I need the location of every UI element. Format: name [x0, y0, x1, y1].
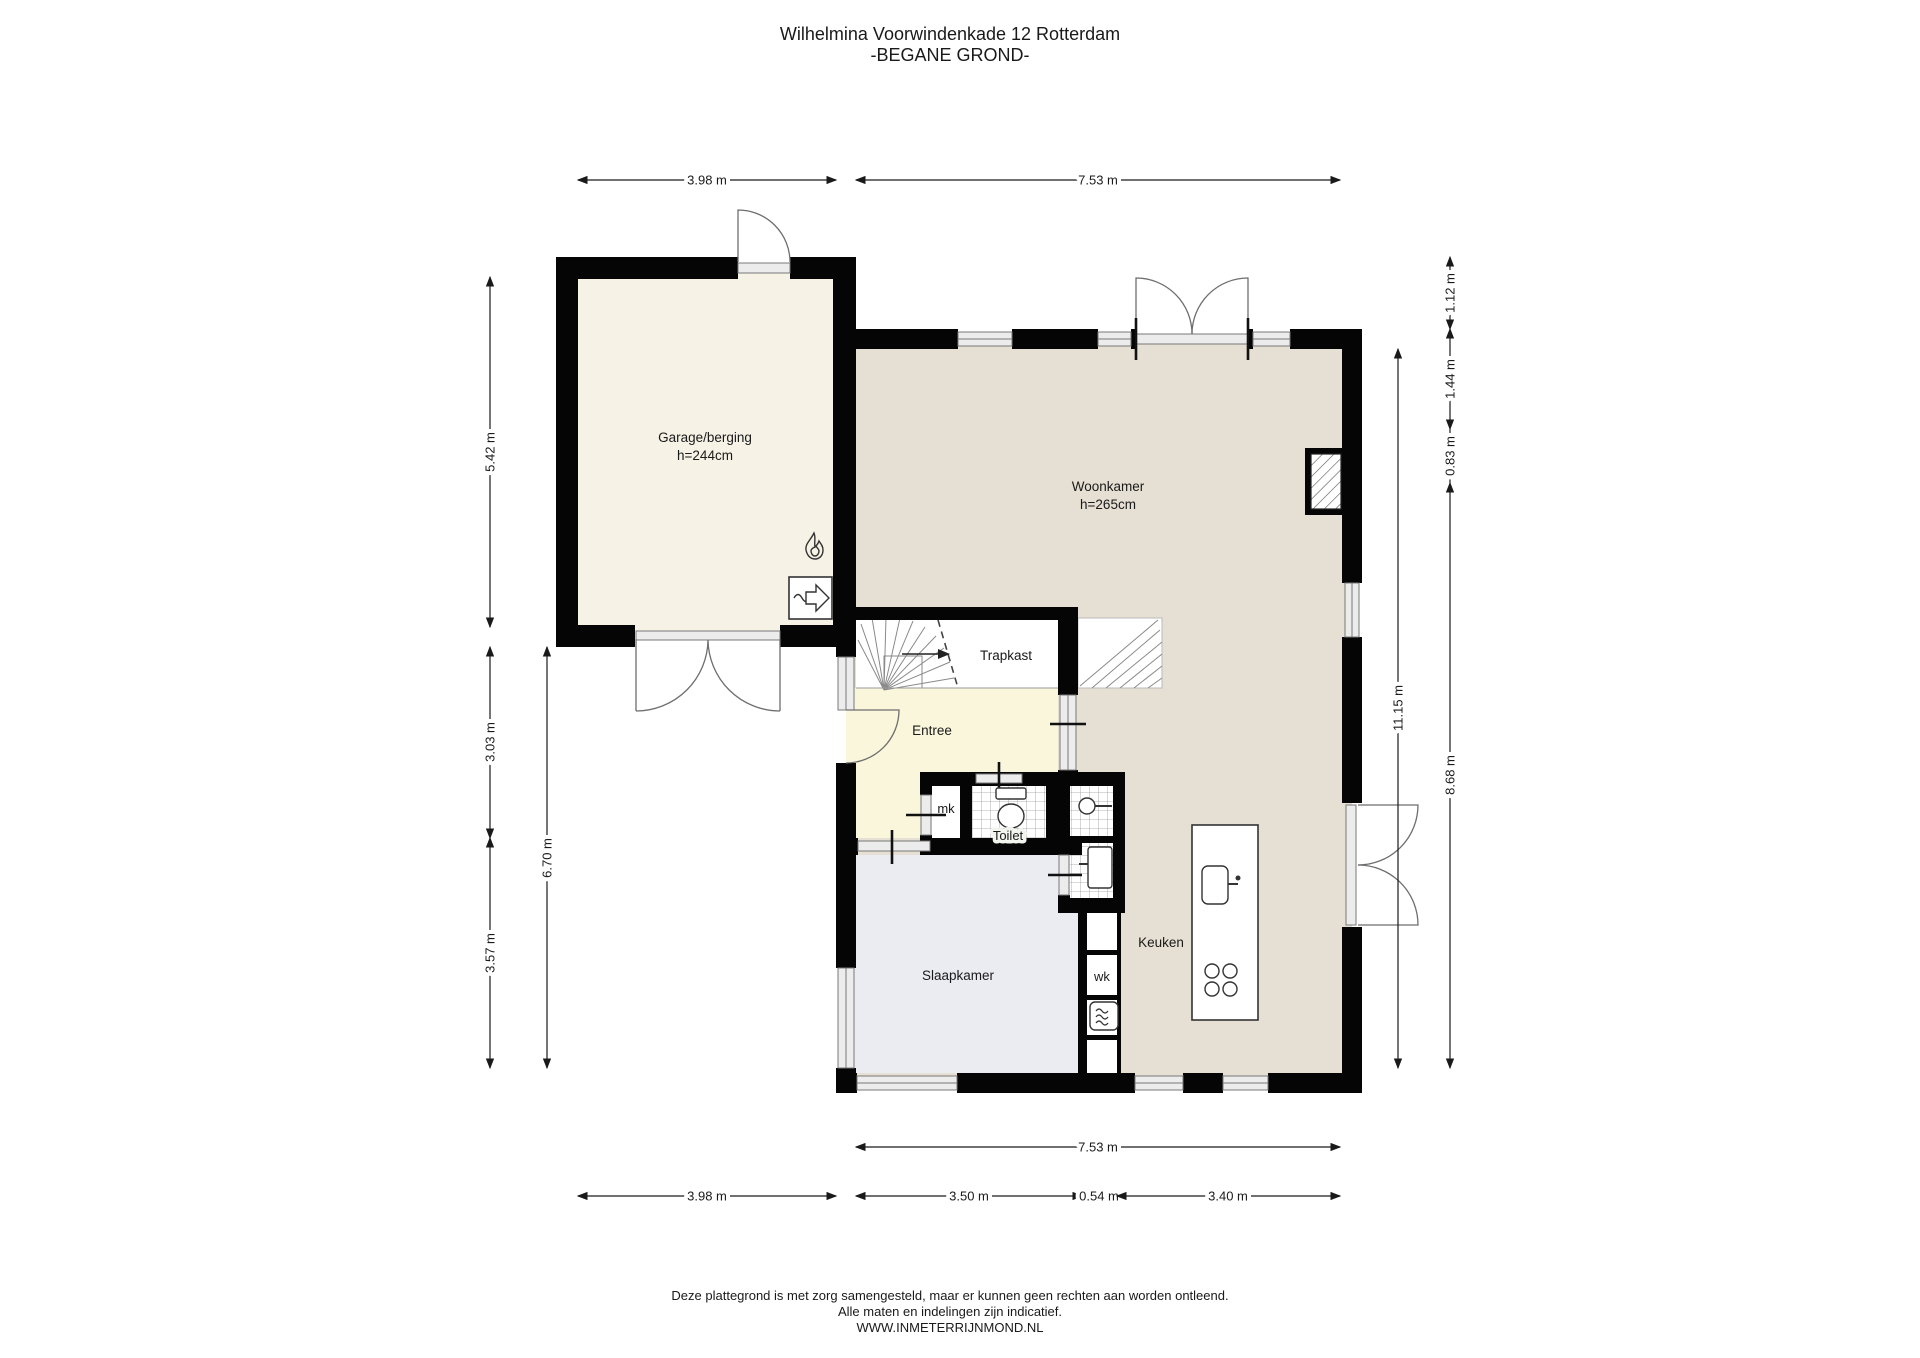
woonkamer-top-window-2 [1098, 332, 1131, 346]
dim-top-garage: 3.98 m [687, 173, 727, 188]
ventilation-unit-icon [789, 577, 832, 619]
oven-icon [1090, 1002, 1118, 1030]
garage-garden-double-door [636, 631, 780, 711]
stair-upper-flight [1078, 618, 1162, 688]
woonkamer-right-window [1345, 583, 1359, 637]
floorplan-canvas: Wilhelmina Voorwindenkade 12 Rotterdam -… [0, 0, 1920, 1358]
footer-block: Deze plattegrond is met zorg samengestel… [671, 1288, 1228, 1335]
wk-label: wk [1093, 969, 1110, 984]
slaapkamer-bottom-window [857, 1076, 957, 1090]
dim-bottom-house: 7.53 m [1078, 1140, 1118, 1155]
footer-disclaimer-1: Deze plattegrond is met zorg samengestel… [671, 1288, 1228, 1303]
slaapkamer-floor [846, 855, 1082, 1073]
woonkamer-top-window-1 [958, 332, 1012, 346]
toilet-fixture [996, 788, 1026, 828]
woonkamer-top-window-3 [1253, 332, 1290, 346]
title-block: Wilhelmina Voorwindenkade 12 Rotterdam -… [780, 24, 1120, 65]
dim-bottom-keuken: 3.40 m [1208, 1189, 1248, 1204]
dim-right-inner: 11.15 m [1391, 685, 1406, 731]
dim-left-entree: 3.03 m [483, 722, 498, 762]
garage-label: Garage/berging [658, 430, 752, 445]
slaapkamer-left-window [838, 968, 854, 1068]
footer-website: WWW.INMETERRIJNMOND.NL [856, 1320, 1043, 1335]
entree-sidelight-window [838, 657, 854, 710]
garage-top-door [738, 210, 790, 273]
garage-height-label: h=244cm [677, 448, 733, 463]
toilet-label: Toilet [993, 828, 1024, 843]
keuken-bottom-window-2 [1223, 1076, 1268, 1090]
dim-right-4: 8.68 m [1443, 755, 1458, 795]
dim-bottom-slaapkamer: 3.50 m [949, 1189, 989, 1204]
plan-title: Wilhelmina Voorwindenkade 12 Rotterdam [780, 24, 1120, 44]
dim-left-garage: 5.42 m [483, 432, 498, 472]
footer-disclaimer-2: Alle maten en indelingen zijn indicatief… [838, 1304, 1062, 1319]
plan-subtitle: -BEGANE GROND- [870, 45, 1029, 65]
keuken-bottom-window-1 [1135, 1076, 1183, 1090]
dim-left-slaapkamer: 3.57 m [483, 933, 498, 973]
dim-top-house: 7.53 m [1078, 173, 1118, 188]
keuken-label: Keuken [1138, 935, 1184, 950]
dim-left-inner: 6.70 m [540, 838, 555, 878]
fireplace-flue-hatch [1311, 454, 1341, 509]
entree-label: Entree [912, 723, 952, 738]
floorplan-page: Wilhelmina Voorwindenkade 12 Rotterdam -… [0, 0, 1920, 1358]
slaapkamer-label: Slaapkamer [922, 968, 995, 983]
dim-right-2: 1.44 m [1443, 359, 1458, 399]
keuken-garden-double-door [1346, 805, 1418, 925]
kitchen-sink [1202, 866, 1228, 904]
woonkamer-label: Woonkamer [1072, 479, 1145, 494]
dim-bottom-wk: 0.54 m [1079, 1189, 1119, 1204]
mk-label: mk [937, 801, 955, 816]
dim-right-1: 1.12 m [1443, 273, 1458, 313]
woonkamer-height-label: h=265cm [1080, 497, 1136, 512]
dim-right-3: 0.83 m [1443, 436, 1458, 476]
wk-column-floor [1087, 913, 1117, 1073]
dim-bottom-garage: 3.98 m [687, 1189, 727, 1204]
trapkast-label: Trapkast [980, 648, 1032, 663]
kitchen-island [1192, 825, 1258, 1020]
